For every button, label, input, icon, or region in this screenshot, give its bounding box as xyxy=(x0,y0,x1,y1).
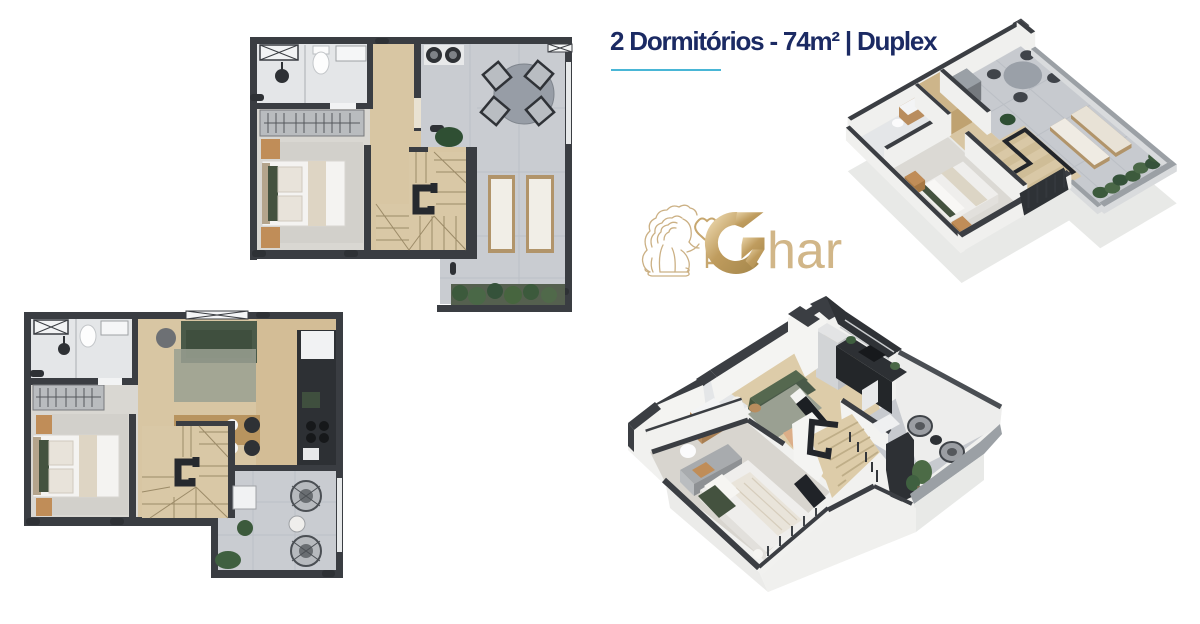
svg-text:har: har xyxy=(767,222,842,280)
svg-text:2 Dormitórios - 74m² | Duplex: 2 Dormitórios - 74m² | Duplex xyxy=(610,26,938,56)
